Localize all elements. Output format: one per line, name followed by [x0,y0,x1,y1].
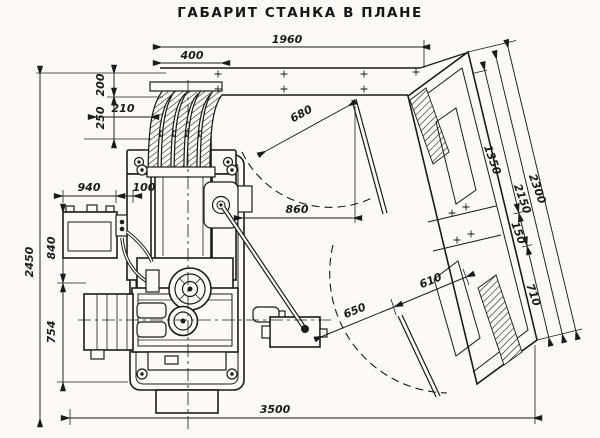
lever-box [270,317,320,347]
dim-250-label: 250 [94,106,107,129]
plan-drawing: ГАБАРИТ СТАНКА В ПЛАНЕ [0,0,600,438]
drawing-sheet: ГАБАРИТ СТАНКА В ПЛАНЕ [0,0,600,438]
clamp-cylinder [137,322,166,337]
handwheel-large [169,268,211,310]
bundle-clamp-top [150,82,222,91]
dim-840-label: 840 [45,236,58,259]
left-electrical-box [63,205,127,258]
machine-pedestal [156,390,218,413]
drawing-title: ГАБАРИТ СТАНКА В ПЛАНЕ [177,5,423,21]
dim-3500-label: 3500 [260,403,291,416]
dim-400-label: 400 [180,49,204,62]
lever-ball-joint [301,325,309,333]
handwheel-small [169,307,198,336]
dim-210-label: 210 [112,102,135,115]
connector [116,215,127,236]
left-block [84,294,133,359]
dim-860-label: 860 [286,203,309,216]
dim-100-label: 100 [133,181,156,194]
apron [148,352,226,370]
dim-2450-label: 2450 [23,246,36,277]
clamp-cylinder [137,303,166,318]
dim-940-label: 940 [78,181,101,194]
bundle-clamp-bottom [147,167,215,177]
dim-200-label: 200 [94,73,107,96]
dim-754-label: 754 [45,321,58,344]
dim-1960-label: 1960 [272,33,303,46]
